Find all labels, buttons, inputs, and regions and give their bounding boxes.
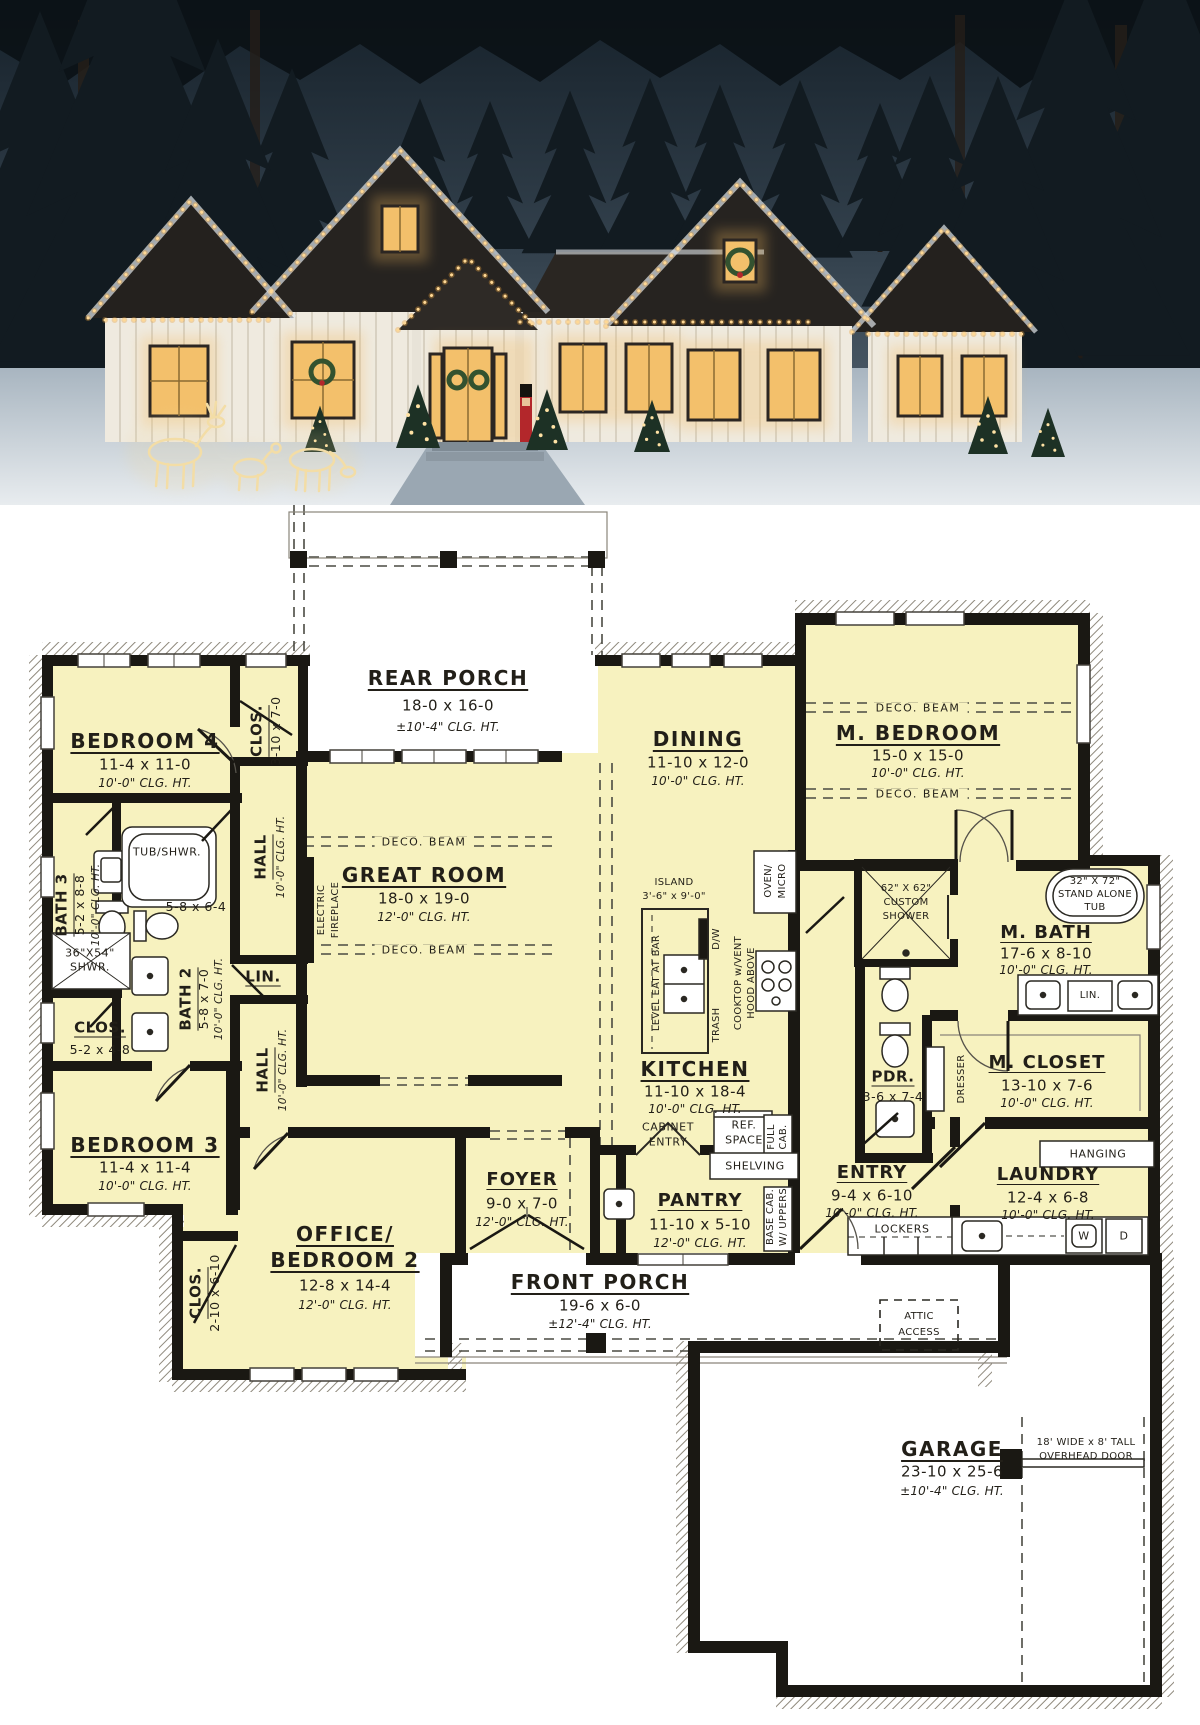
- floor-plan-drawing: [0, 505, 1200, 1725]
- room-dims-m-bath: 17-6 x 8-10: [1000, 947, 1092, 962]
- room-name-m-bedroom: M. BEDROOM: [836, 723, 1000, 743]
- room-name-m-bath: M. BATH: [1000, 924, 1092, 942]
- room-dims-clos-office: 2-10 x 6-10: [209, 1254, 222, 1332]
- room-name-laundry: LAUNDRY: [997, 1166, 1099, 1184]
- room-dims-front-porch: 19-6 x 6-0: [559, 1299, 641, 1314]
- room-dims-pantry: 11-10 x 5-10: [649, 1218, 751, 1233]
- label-lockers: LOCKERS: [874, 1224, 929, 1235]
- room-dims-entry: 9-4 x 6-10: [831, 1189, 913, 1204]
- room-clg-dining: 10'-0" CLG. HT.: [651, 775, 745, 787]
- room-clg-garage: ±10'-4" CLG. HT.: [900, 1485, 1004, 1497]
- label-lin-m-bath: LIN.: [1080, 991, 1100, 1001]
- floor-plan: REAR PORCH 18-0 x 16-0 ±10'-4" CLG. HT. …: [0, 505, 1200, 1725]
- room-clg-m-closet: 10'-0" CLG. HT.: [1000, 1097, 1094, 1109]
- room-dims-rear-porch: 18-0 x 16-0: [402, 699, 494, 714]
- room-name-office-2: BEDROOM 2: [270, 1250, 419, 1270]
- room-dims-kitchen: 11-10 x 18-4: [644, 1085, 746, 1100]
- room-name-hall-lower: HALL: [256, 1047, 271, 1092]
- room-name-clos-bedroom4: CLOS.: [250, 705, 265, 757]
- room-clg-foyer: 12'-0" CLG. HT.: [475, 1216, 569, 1228]
- label-bath2-tub-dims: 5-8 x 6-4: [166, 901, 227, 914]
- label-island-dims: 3'-6" x 9'-0": [642, 892, 706, 902]
- room-dims-laundry: 12-4 x 6-8: [1007, 1191, 1089, 1206]
- label-ref-space-1: REF.: [731, 1120, 756, 1131]
- room-name-bath2: BATH 2: [179, 967, 194, 1030]
- label-electric-fireplace-2: FIREPLACE: [331, 882, 341, 938]
- label-trash: TRASH: [712, 1008, 722, 1043]
- room-clg-bath3: 10'-0" CLG. HT.: [91, 864, 102, 946]
- label-full-cab-2: CAB.: [779, 1124, 789, 1149]
- label-dw: D/W: [712, 928, 722, 950]
- label-deco-beam-mbed-2: DECO. BEAM: [869, 789, 968, 800]
- label-custom-shower-2: CUSTOM: [883, 898, 928, 908]
- label-shelving: SHELVING: [725, 1161, 784, 1172]
- label-deco-beam-mbed-1: DECO. BEAM: [869, 703, 968, 714]
- room-name-front-porch: FRONT PORCH: [511, 1272, 689, 1292]
- room-clg-laundry: 10'-0" CLG. HT.: [1001, 1209, 1095, 1221]
- room-dims-garage: 23-10 x 25-6: [901, 1465, 1003, 1480]
- label-stand-tub-3: TUB: [1084, 903, 1105, 913]
- label-electric-fireplace-1: ELECTRIC: [317, 885, 327, 936]
- label-attic-access-1: ATTIC: [904, 1312, 934, 1322]
- room-name-bedroom3: BEDROOM 3: [70, 1135, 219, 1155]
- room-clg-pantry: 12'-0" CLG. HT.: [653, 1237, 747, 1249]
- room-dims-m-closet: 13-10 x 7-6: [1001, 1079, 1093, 1094]
- room-name-pdr: PDR.: [872, 1070, 915, 1085]
- label-cabinet-entry-1: CABINET: [642, 1122, 694, 1133]
- label-corner-shower-2: SHWR.: [70, 962, 110, 973]
- label-oven-2: MICRO: [778, 864, 788, 899]
- room-dims-m-bedroom: 15-0 x 15-0: [872, 749, 964, 764]
- label-dryer: D: [1119, 1231, 1128, 1242]
- label-oven-1: OVEN/: [764, 864, 774, 897]
- room-dims-clos-bedroom3: 5-2 x 4-8: [70, 1044, 131, 1057]
- room-dims-clos-bedroom4: 3-10 x 7-0: [270, 696, 283, 765]
- label-level-eat-at-bar: LEVEL EAT AT BAR: [652, 935, 662, 1031]
- room-clg-kitchen: 10'-0" CLG. HT.: [648, 1103, 742, 1115]
- room-clg-bedroom3: 10'-0" CLG. HT.: [98, 1180, 192, 1192]
- room-name-kitchen: KITCHEN: [641, 1059, 750, 1079]
- room-clg-front-porch: ±12'-4" CLG. HT.: [548, 1318, 652, 1330]
- label-deco-beam-great-2: DECO. BEAM: [375, 945, 474, 956]
- label-deco-beam-great-1: DECO. BEAM: [375, 837, 474, 848]
- house-plan-sheet: REAR PORCH 18-0 x 16-0 ±10'-4" CLG. HT. …: [0, 0, 1200, 1725]
- room-clg-hall-upper: 10'-0" CLG. HT.: [276, 816, 287, 898]
- label-tub-shwr: TUB/SHWR.: [133, 847, 201, 858]
- label-stand-tub-1: 32" X 72": [1070, 877, 1121, 887]
- label-corner-shower-1: 36"X54": [65, 948, 115, 959]
- room-clg-bath2: 10'-0" CLG. HT.: [214, 958, 225, 1040]
- room-name-clos-office: CLOS.: [189, 1267, 204, 1319]
- room-clg-rear-porch: ±10'-4" CLG. HT.: [396, 721, 500, 733]
- room-clg-entry: 10'-0" CLG. HT.: [825, 1207, 919, 1219]
- nutcracker-figure: [520, 384, 532, 442]
- label-base-cab-1: BASE CAB.: [766, 1189, 776, 1245]
- label-stand-tub-2: STAND ALONE: [1058, 890, 1132, 900]
- room-name-rear-porch: REAR PORCH: [368, 668, 528, 688]
- label-custom-shower-3: SHOWER: [883, 912, 930, 922]
- room-name-foyer: FOYER: [486, 1171, 557, 1189]
- room-name-m-closet: M. CLOSET: [989, 1054, 1106, 1072]
- room-clg-bedroom4: 10'-0" CLG. HT.: [98, 777, 192, 789]
- label-lin-hall: LIN.: [245, 970, 280, 985]
- room-dims-dining: 11-10 x 12-0: [647, 756, 749, 771]
- room-name-great-room: GREAT ROOM: [342, 865, 506, 885]
- label-custom-shower-1: 62" X 62": [881, 884, 932, 894]
- label-base-cab-2: W/ UPPERS: [779, 1188, 789, 1246]
- room-dims-foyer: 9-0 x 7-0: [486, 1197, 558, 1212]
- room-dims-office: 12-8 x 14-4: [299, 1279, 391, 1294]
- room-name-garage: GARAGE: [901, 1439, 1003, 1459]
- room-dims-pdr: 3-6 x 7-4: [863, 1091, 924, 1104]
- label-cooktop-2: HOOD ABOVE: [747, 947, 757, 1019]
- room-name-clos-bedroom3: CLOS.: [74, 1021, 126, 1036]
- room-name-entry: ENTRY: [837, 1164, 908, 1182]
- room-name-bath3: BATH 3: [55, 873, 70, 936]
- label-overhead-door-1: 18' WIDE x 8' TALL: [1037, 1438, 1136, 1448]
- room-dims-bath2: 5-8 x 7-0: [198, 969, 211, 1030]
- label-ref-space-2: SPACE: [725, 1135, 763, 1146]
- room-clg-m-bedroom: 10'-0" CLG. HT.: [871, 767, 965, 779]
- label-overhead-door-2: OVERHEAD DOOR: [1039, 1452, 1133, 1462]
- room-dims-bath3: 5-2 x 8-8: [74, 875, 87, 936]
- room-name-bedroom4: BEDROOM 4: [70, 731, 219, 751]
- room-name-hall-upper: HALL: [254, 834, 269, 879]
- label-dresser: DRESSER: [957, 1054, 967, 1103]
- label-full-cab-1: FULL: [767, 1124, 777, 1149]
- room-name-pantry: PANTRY: [658, 1192, 743, 1210]
- label-cooktop-1: COOKTOP w/VENT: [734, 936, 744, 1030]
- label-island-name: ISLAND: [655, 878, 694, 888]
- room-clg-office: 12'-0" CLG. HT.: [298, 1299, 392, 1311]
- room-name-office-1: OFFICE/: [296, 1224, 394, 1244]
- label-cabinet-entry-2: ENTRY: [649, 1137, 688, 1148]
- room-dims-bedroom3: 11-4 x 11-4: [99, 1161, 191, 1176]
- room-clg-m-bath: 10'-0" CLG. HT.: [999, 964, 1093, 976]
- label-hanging: HANGING: [1070, 1149, 1127, 1160]
- room-name-dining: DINING: [653, 729, 743, 749]
- room-dims-bedroom4: 11-4 x 11-0: [99, 758, 191, 773]
- room-dims-great-room: 18-0 x 19-0: [378, 892, 470, 907]
- label-washer: W: [1078, 1231, 1089, 1242]
- label-attic-access-2: ACCESS: [898, 1328, 939, 1338]
- room-clg-hall-lower: 10'-0" CLG. HT.: [278, 1029, 289, 1111]
- room-clg-great-room: 12'-0" CLG. HT.: [377, 911, 471, 923]
- house-exterior-photo: [0, 0, 1200, 505]
